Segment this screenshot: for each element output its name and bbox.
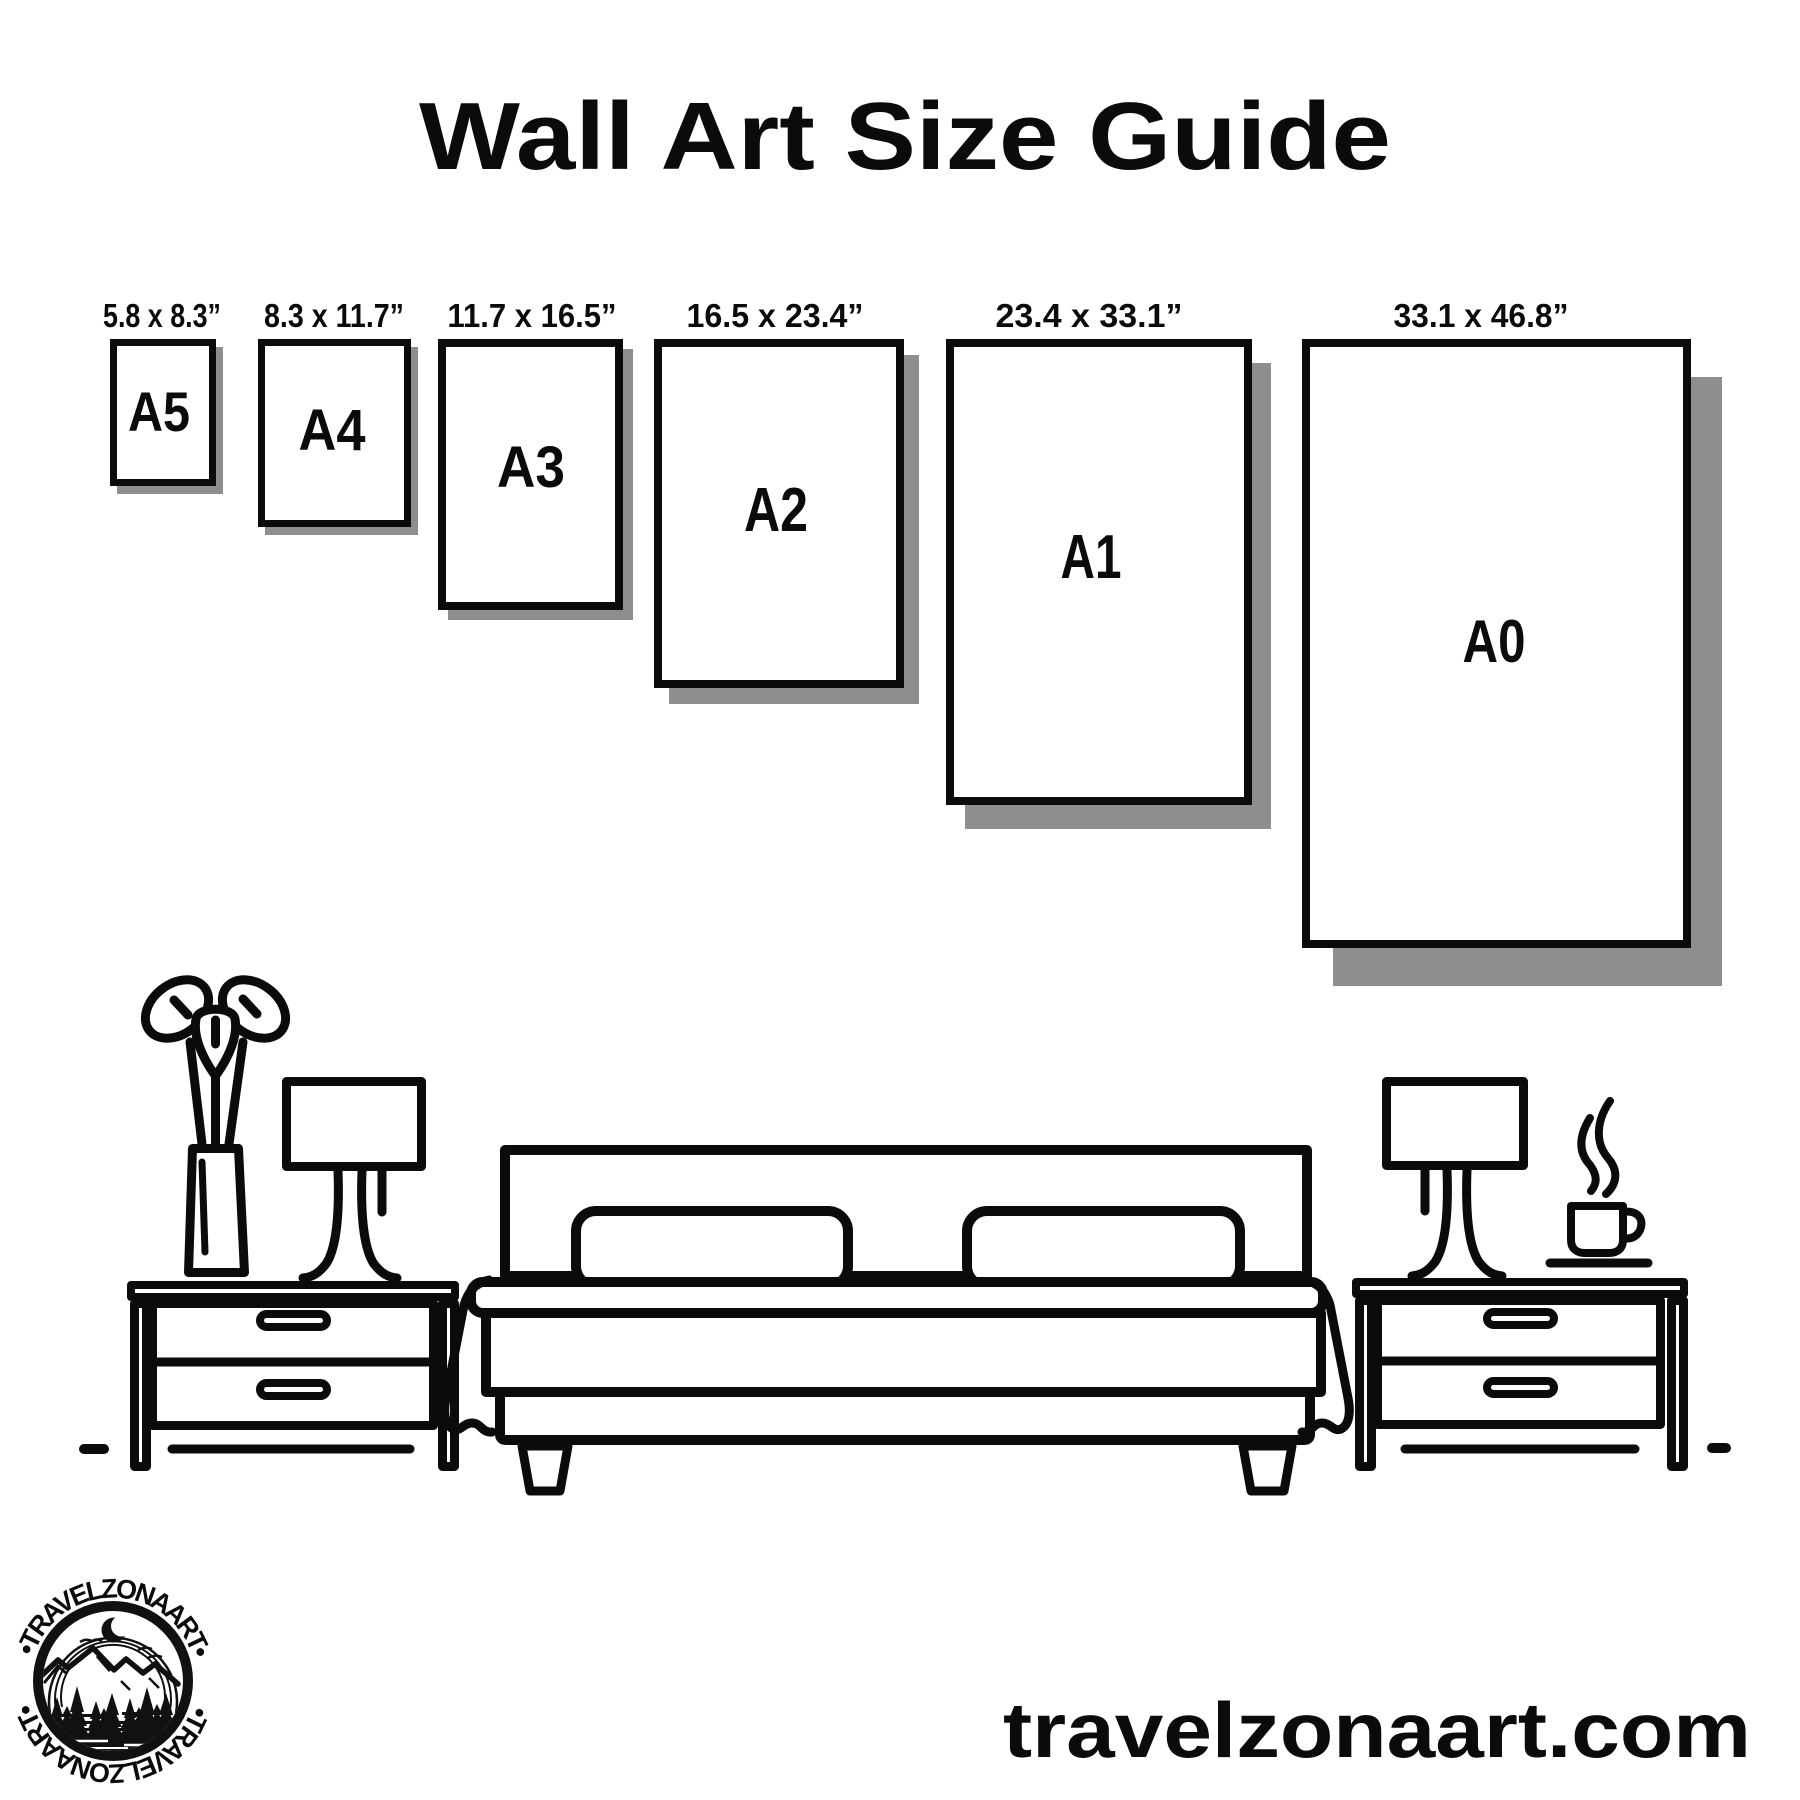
svg-text:5.8 x 8.3”: 5.8 x 8.3” [103,297,221,334]
svg-text:A3: A3 [497,435,565,500]
svg-text:A4: A4 [299,398,366,463]
svg-text:16.5 x 23.4”: 16.5 x 23.4” [687,297,864,334]
svg-text:Wall Art Size Guide: Wall Art Size Guide [419,83,1391,190]
svg-text:33.1 x 46.8”: 33.1 x 46.8” [1394,297,1569,334]
svg-text:8.3 x 11.7”: 8.3 x 11.7” [264,297,404,334]
svg-text:A2: A2 [744,476,808,545]
svg-text:11.7 x 16.5”: 11.7 x 16.5” [448,297,617,334]
svg-text:travelzonaart.com: travelzonaart.com [1003,1686,1751,1774]
svg-text:A0: A0 [1463,608,1526,675]
svg-text:A1: A1 [1061,523,1122,592]
svg-text:A5: A5 [128,380,190,443]
svg-text:23.4 x 33.1”: 23.4 x 33.1” [996,297,1183,334]
